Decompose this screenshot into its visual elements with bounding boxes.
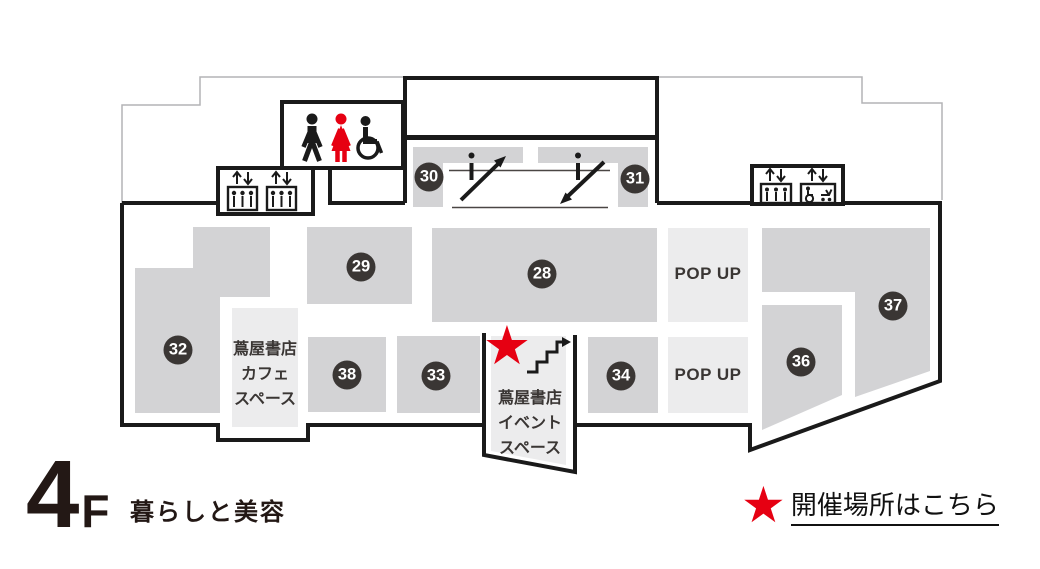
area-badge-32: 32 bbox=[164, 336, 193, 365]
floor-suffix: F bbox=[81, 484, 109, 538]
area-badge-37: 37 bbox=[879, 292, 908, 321]
area-badge-30: 30 bbox=[415, 163, 444, 192]
floor-map-4f: 28 29 30 31 32 33 34 36 37 38 POP UP POP… bbox=[0, 0, 1040, 569]
area-badge-33: 33 bbox=[422, 362, 451, 391]
event-space-line2: イベント bbox=[498, 411, 562, 436]
popup-bottom-label: POP UP bbox=[675, 365, 742, 385]
cafe-space-line3: スペース bbox=[233, 387, 297, 412]
floor-title: 4 F bbox=[26, 458, 110, 538]
event-space-label: 蔦屋書店 イベント スペース bbox=[498, 386, 562, 461]
area-badge-29: 29 bbox=[347, 253, 376, 282]
area-badge-31: 31 bbox=[621, 165, 650, 194]
area-badge-38: 38 bbox=[333, 361, 362, 390]
legend-star-icon: ★ bbox=[741, 480, 786, 530]
event-space-line3: スペース bbox=[498, 436, 562, 461]
cafe-space-line2: カフェ bbox=[233, 362, 297, 387]
cafe-space-label: 蔦屋書店 カフェ スペース bbox=[233, 337, 297, 412]
event-location-star-icon: ★ bbox=[483, 319, 531, 373]
floor-category: 暮らしと美容 bbox=[130, 492, 286, 527]
area-badge-28: 28 bbox=[528, 260, 557, 289]
floor-level: 4 bbox=[26, 458, 79, 532]
left-elevators bbox=[218, 168, 313, 214]
area-badge-36: 36 bbox=[787, 348, 816, 377]
stairwell-room bbox=[405, 78, 657, 137]
cafe-space-line1: 蔦屋書店 bbox=[233, 337, 297, 362]
area-badge-34: 34 bbox=[607, 362, 636, 391]
legend: ★ 開催場所はこちら bbox=[741, 480, 999, 530]
right-elevators bbox=[752, 166, 843, 204]
event-space-line1: 蔦屋書店 bbox=[498, 386, 562, 411]
legend-text: 開催場所はこちら bbox=[791, 485, 999, 526]
popup-top-label: POP UP bbox=[675, 264, 742, 284]
